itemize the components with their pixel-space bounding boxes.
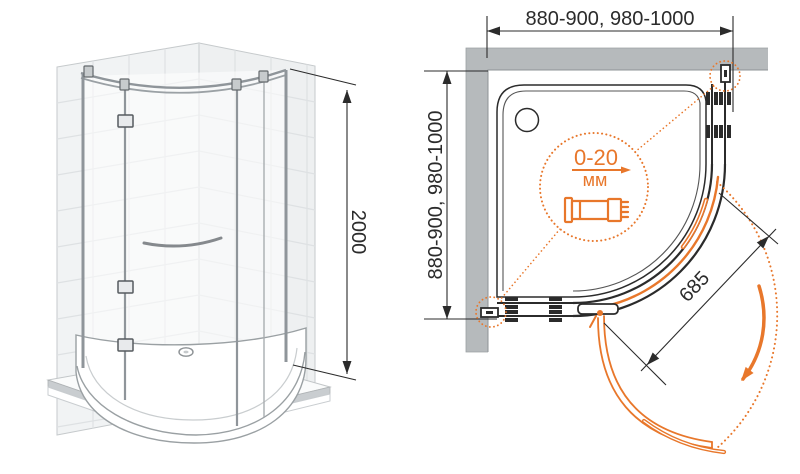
profile-body — [572, 201, 612, 219]
shower-tray-3d — [76, 328, 306, 443]
depth-arrow-down — [443, 306, 452, 319]
height-arrow-up — [343, 90, 352, 103]
swing-arrow-curve — [743, 286, 764, 379]
tray-body — [76, 328, 306, 443]
depth-arrow-up — [443, 71, 452, 84]
width-dim-label: 880-900, 980-1000 — [525, 8, 694, 30]
width-arrow-left — [487, 27, 500, 36]
door-handle-knob — [118, 281, 133, 293]
door-swing-path — [717, 182, 777, 448]
door-hinge-bottom — [118, 339, 133, 351]
detail-unit-label: мм — [583, 170, 608, 190]
right-panel-clamps — [706, 92, 731, 138]
drain-plan — [516, 109, 539, 132]
profile-right-piece — [608, 199, 621, 221]
open-door-edge-inner — [604, 316, 712, 442]
shower-diagram: 2000 880-900, 980-1000 880-900, — [0, 0, 800, 474]
height-dim-label: 2000 — [347, 210, 369, 255]
pivot-arm — [590, 316, 596, 327]
pivot-point — [597, 310, 603, 316]
plan-view: 880-900, 980-1000 880-900, 980-1000 — [424, 8, 778, 452]
width-arrow-right — [720, 27, 733, 36]
door-hinge-top — [118, 115, 133, 127]
door-swing-arrow — [737, 286, 764, 384]
height-arrow-down — [343, 361, 352, 374]
side-view-3d: 2000 — [48, 43, 369, 443]
bottom-panel-clamps — [505, 297, 562, 322]
fixed-panel-bottom — [476, 297, 580, 327]
rail-clamp-2 — [120, 79, 129, 90]
rail-clamp-4 — [259, 71, 268, 82]
wall-profile-top-core — [724, 70, 727, 77]
adjustable-profile-icon — [565, 198, 628, 222]
drain-center — [184, 351, 189, 354]
rail-clamp-1 — [84, 66, 93, 77]
detail-range-label: 0-20 — [574, 145, 618, 170]
depth-dim-label: 880-900, 980-1000 — [425, 110, 447, 279]
wall-profile-bottom-core — [486, 311, 493, 314]
drawing-canvas: 2000 880-900, 980-1000 880-900, — [0, 0, 800, 474]
rail-clamp-3 — [232, 79, 241, 90]
fixed-panel-right — [706, 61, 740, 164]
